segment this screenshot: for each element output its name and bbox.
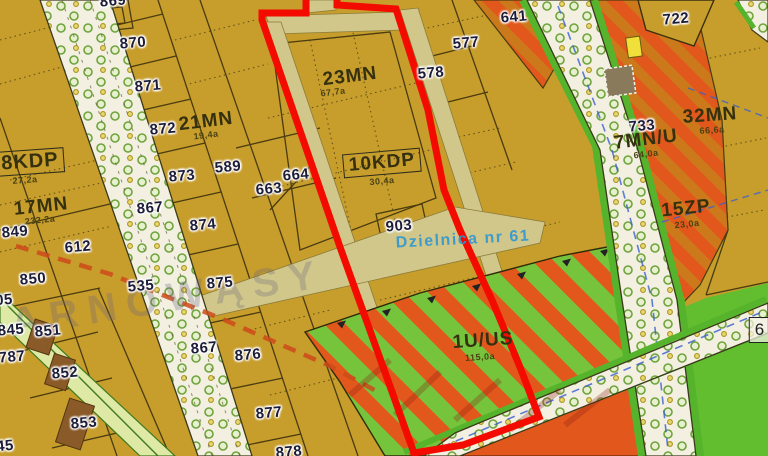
parcel-label-850: 850 (19, 269, 47, 288)
parcel-label-867a: 867 (136, 198, 164, 217)
parcel-label-663: 663 (255, 179, 283, 198)
parcel-label-870: 870 (119, 33, 147, 52)
zoning-map-viewport[interactable]: ARNOWĄSY Dzielnica nr 61 8KDP 27,2a 17MN… (0, 0, 768, 456)
parcel-label-874: 874 (189, 215, 217, 234)
parcel-label-851: 851 (34, 321, 62, 340)
parcel-label-578: 578 (417, 63, 445, 82)
parcel-label-872: 872 (149, 119, 177, 138)
parcel-label-903: 903 (385, 216, 413, 235)
parcel-label-589: 589 (214, 157, 242, 176)
zone-area-1uus: 115,0a (465, 351, 496, 363)
building-733-gray (604, 65, 636, 97)
parcel-label-722: 722 (662, 9, 690, 28)
map-canvas (0, 0, 768, 456)
parcel-label-873: 873 (168, 166, 196, 185)
parcel-label-876: 876 (234, 345, 262, 364)
building-733-yellow (626, 36, 643, 58)
parcel-label-45: 45 (0, 437, 15, 455)
parcel-label-877: 877 (255, 403, 283, 422)
parcel-label-641: 641 (500, 7, 528, 26)
parcel-label-852: 852 (51, 363, 79, 382)
parcel-label-845: 845 (0, 320, 25, 339)
parcel-label-664: 664 (282, 165, 310, 184)
parcel-label-733: 733 (628, 116, 656, 135)
zone-label-8kdp: 8KDP (0, 147, 65, 177)
parcel-label-871: 871 (134, 76, 162, 95)
zone-area-32mn: 66,6a (699, 124, 725, 136)
zone-label-edge6: 6 (749, 317, 768, 343)
parcel-label-535: 535 (127, 276, 155, 295)
parcel-label-05: 05 (0, 291, 14, 309)
parcel-label-849: 849 (1, 222, 29, 241)
zone-area-8kdp: 27,2a (12, 174, 38, 186)
zone-label-1uus: 1U/US (452, 328, 514, 354)
parcel-label-853: 853 (70, 413, 98, 432)
parcel-label-875: 875 (206, 273, 234, 292)
parcel-label-867b: 867 (190, 338, 218, 357)
parcel-label-612: 612 (64, 237, 92, 256)
parcel-label-577: 577 (452, 33, 480, 52)
parcel-label-878: 878 (275, 442, 303, 456)
parcel-label-787: 787 (0, 347, 26, 366)
